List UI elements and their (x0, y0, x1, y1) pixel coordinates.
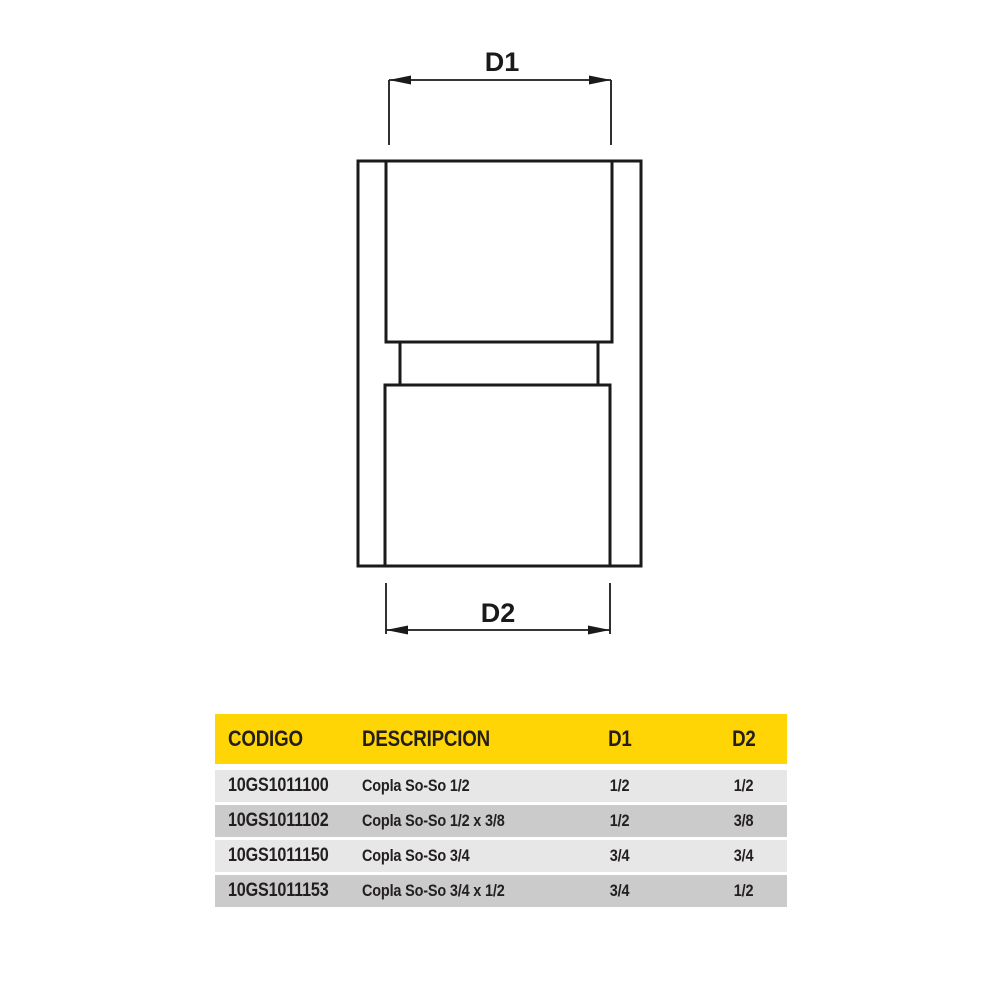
coupling-center-waist (400, 342, 598, 385)
product-table: CODIGO DESCRIPCION D1 D2 10GS1011100 Cop… (215, 714, 787, 907)
d1-dimension: D1 (389, 47, 611, 145)
table-row: 10GS1011100 Copla So-So 1/2 1/2 1/2 (215, 770, 787, 802)
d2-dimension: D2 (386, 583, 610, 635)
d1-cell: 1/2 (555, 811, 685, 831)
codigo-cell: 10GS1011150 (215, 845, 362, 867)
d2-cell: 1/2 (685, 776, 787, 796)
codigo-cell: 10GS1011100 (215, 775, 362, 797)
d2-arrow-left-icon (386, 626, 408, 635)
d1-cell: 3/4 (555, 846, 685, 866)
d2-column-header: D2 (685, 726, 787, 752)
d1-arrow-left-icon (389, 76, 411, 85)
codigo-column-header: CODIGO (215, 726, 362, 752)
catalog-page: D1 D2 CODIGO DESCRIPCION D1 D2 10GS10111… (0, 0, 1000, 1000)
table-row: 10GS1011150 Copla So-So 3/4 3/4 3/4 (215, 840, 787, 872)
d1-dimension-label: D1 (485, 47, 520, 77)
d1-cell: 1/2 (555, 776, 685, 796)
d2-cell: 3/4 (685, 846, 787, 866)
table-row: 10GS1011102 Copla So-So 1/2 x 3/8 1/2 3/… (215, 805, 787, 837)
descripcion-cell: Copla So-So 3/4 x 1/2 (362, 881, 555, 901)
coupling-top-socket (386, 161, 612, 342)
d2-cell: 3/8 (685, 811, 787, 831)
codigo-cell: 10GS1011153 (215, 880, 362, 902)
d2-dimension-label: D2 (481, 598, 516, 628)
coupling-body (358, 161, 641, 566)
d1-cell: 3/4 (555, 881, 685, 901)
table-header-row: CODIGO DESCRIPCION D1 D2 (215, 714, 787, 764)
descripcion-column-header: DESCRIPCION (362, 726, 555, 752)
descripcion-cell: Copla So-So 1/2 x 3/8 (362, 811, 555, 831)
table-row: 10GS1011153 Copla So-So 3/4 x 1/2 3/4 1/… (215, 875, 787, 907)
d1-arrow-right-icon (589, 76, 611, 85)
coupling-bottom-socket (385, 385, 610, 566)
d2-arrow-right-icon (588, 626, 610, 635)
descripcion-cell: Copla So-So 3/4 (362, 846, 555, 866)
d1-column-header: D1 (555, 726, 685, 752)
codigo-cell: 10GS1011102 (215, 810, 362, 832)
coupling-diagram: D1 D2 (0, 0, 1000, 700)
descripcion-cell: Copla So-So 1/2 (362, 776, 555, 796)
d2-cell: 1/2 (685, 881, 787, 901)
